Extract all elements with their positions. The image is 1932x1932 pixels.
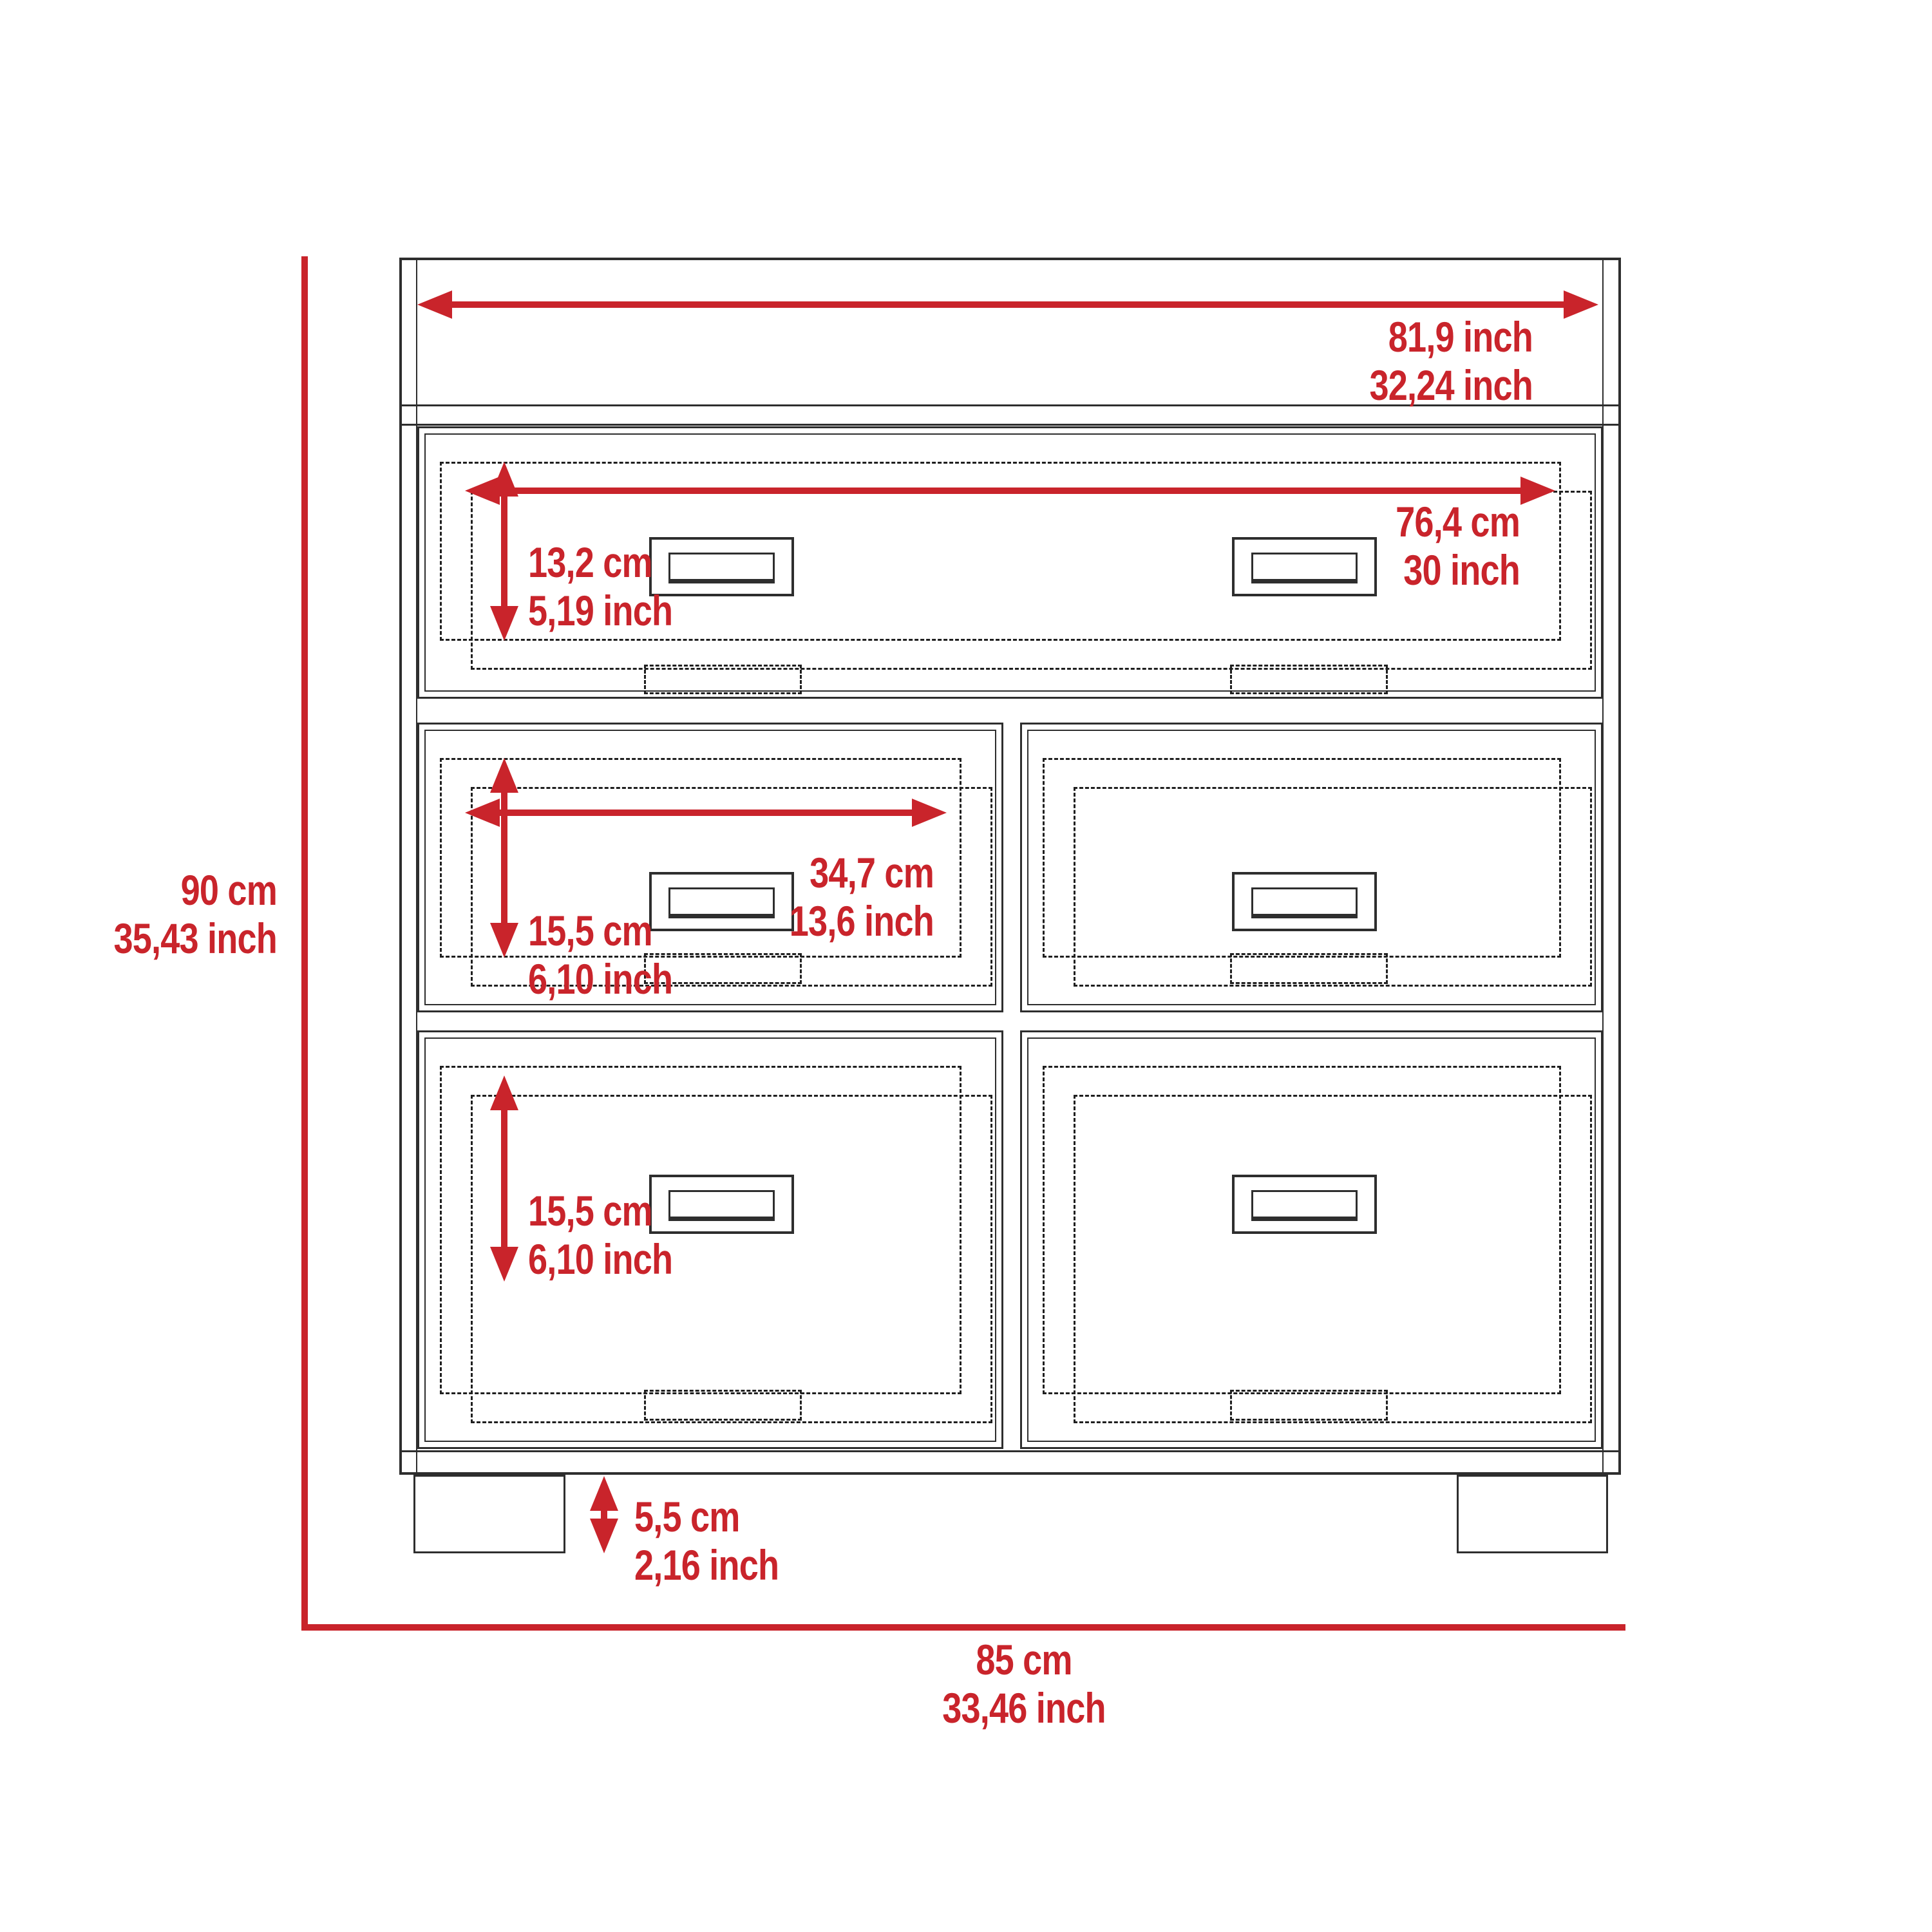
overall-height-inch: 35,43 inch [82,914,277,963]
overall-width-line [301,1624,1625,1631]
bottom-drawer-height-label: 15,5 cm 6,10 inch [528,1187,750,1283]
bottom-right-handle-dashed [1230,1390,1388,1421]
bottom-drawer-height-cm: 15,5 cm [528,1187,750,1235]
top-drawer-handle-dashed-left [644,665,802,694]
top-drawer-handle-dashed-right [1230,665,1388,694]
top-shelf-line-lower [402,424,1618,426]
middle-right-handle-dashed [1230,953,1388,984]
overall-width-inch: 33,46 inch [892,1684,1156,1732]
top-width-label: 81,9 inch 32,24 inch [1348,313,1533,410]
leg-height-arrow [590,1476,618,1553]
leg-height-inch: 2,16 inch [634,1541,856,1589]
handle-recess [1251,887,1358,918]
bottom-right-dashed-outline-offset [1074,1095,1592,1423]
mid-drawer-width-cm: 34,7 cm [749,849,934,897]
top-drawer-width-label: 76,4 cm 30 inch [1335,498,1520,594]
top-drawer-width-inch: 30 inch [1335,546,1520,594]
top-drawer-height-label: 13,2 cm 5,19 inch [528,538,750,635]
overall-height-line [301,256,308,1631]
handle-recess [1251,1190,1358,1221]
top-width-cm: 81,9 inch [1348,313,1533,361]
top-drawer-width-cm: 76,4 cm [1335,498,1520,546]
mid-drawer-height-cm: 15,5 cm [528,907,750,955]
dimension-diagram: 90 cm 35,43 inch 85 cm 33,46 inch 81,9 i… [0,0,1932,1932]
overall-height-label: 90 cm 35,43 inch [82,866,277,963]
top-drawer-height-arrow [490,462,518,641]
overall-width-cm: 85 cm [892,1636,1156,1684]
leg-height-label: 5,5 cm 2,16 inch [634,1493,856,1589]
leg-height-cm: 5,5 cm [634,1493,856,1541]
bottom-left-handle-dashed [644,1390,802,1421]
top-width-inch: 32,24 inch [1348,361,1533,410]
right-leg [1457,1475,1608,1553]
mid-drawer-height-label: 15,5 cm 6,10 inch [528,907,750,1003]
overall-width-label: 85 cm 33,46 inch [892,1636,1156,1732]
middle-right-drawer-handle [1232,872,1377,931]
left-leg [413,1475,565,1553]
mid-drawer-width-arrow [465,799,947,827]
overall-height-cm: 90 cm [82,866,277,914]
bottom-drawer-height-arrow [490,1075,518,1282]
bottom-drawer-height-inch: 6,10 inch [528,1235,750,1283]
mid-drawer-width-label: 34,7 cm 13,6 inch [749,849,934,945]
mid-drawer-height-arrow [490,758,518,958]
bottom-right-drawer-handle [1232,1175,1377,1234]
mid-drawer-width-inch: 13,6 inch [749,897,934,945]
plinth-line [402,1450,1618,1452]
mid-drawer-height-inch: 6,10 inch [528,955,750,1003]
top-drawer-height-inch: 5,19 inch [528,587,750,635]
top-drawer-height-cm: 13,2 cm [528,538,750,587]
